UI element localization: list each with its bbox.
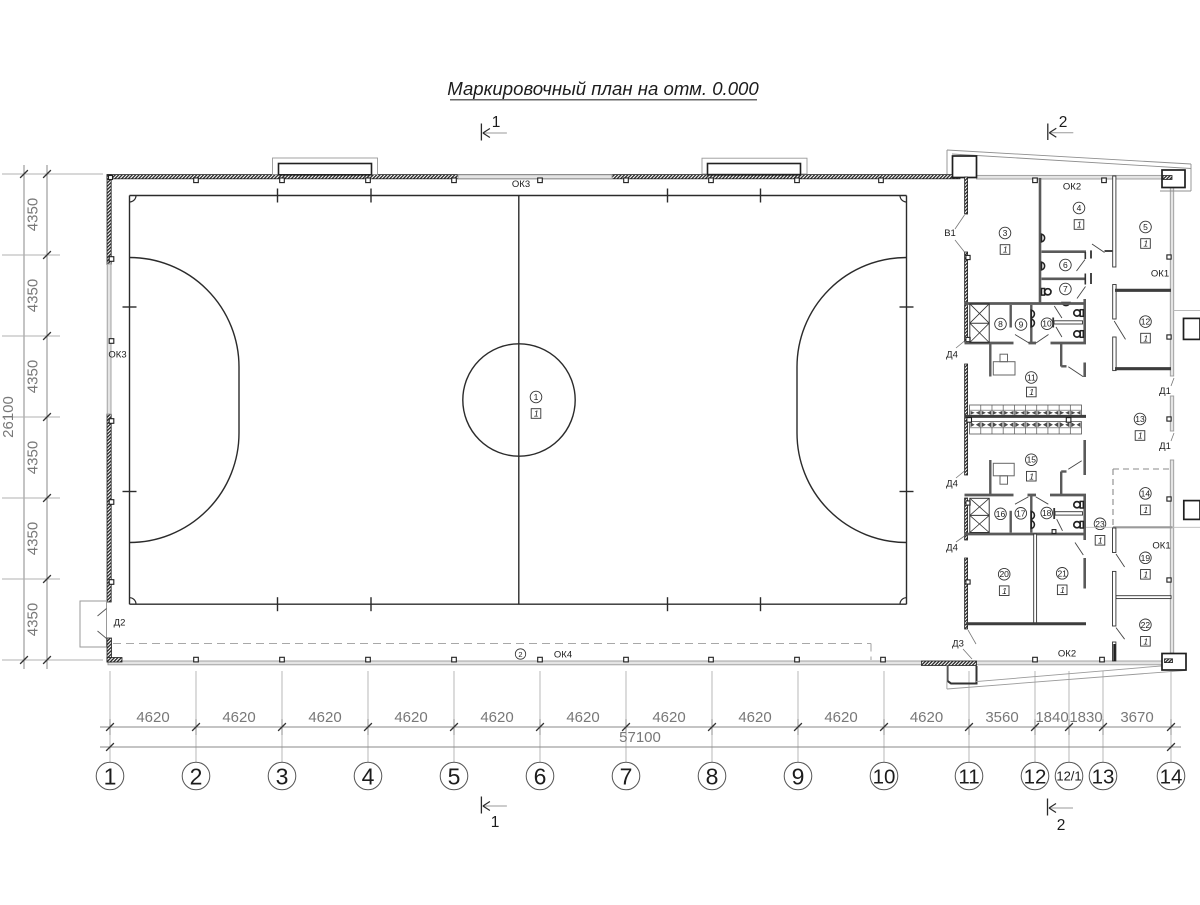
svg-text:Д1: Д1 [1159,441,1171,452]
svg-text:1840: 1840 [1035,709,1068,726]
svg-text:4: 4 [1077,203,1082,213]
svg-text:1: 1 [491,814,500,831]
svg-text:14: 14 [1160,765,1183,788]
svg-text:1: 1 [1029,387,1034,397]
svg-text:ОК2: ОК2 [1063,182,1081,193]
svg-text:1: 1 [1143,570,1148,580]
svg-text:6: 6 [534,763,547,789]
svg-text:22: 22 [1141,620,1151,630]
svg-text:В1: В1 [944,228,956,239]
svg-text:16: 16 [996,509,1006,519]
svg-text:5: 5 [1143,222,1148,232]
svg-text:1830: 1830 [1069,709,1102,726]
svg-text:5: 5 [448,763,461,789]
svg-text:Д4: Д4 [946,350,958,361]
svg-text:4620: 4620 [136,709,169,726]
svg-text:4350: 4350 [25,441,42,474]
svg-text:4620: 4620 [222,709,255,726]
svg-text:4620: 4620 [652,709,685,726]
svg-text:6: 6 [1063,260,1068,270]
svg-text:14: 14 [1141,488,1151,498]
svg-text:1: 1 [1143,505,1148,515]
svg-text:4620: 4620 [566,709,599,726]
svg-text:3670: 3670 [1120,709,1153,726]
svg-text:2: 2 [1057,817,1066,834]
svg-text:9: 9 [792,763,805,789]
svg-text:3560: 3560 [985,709,1018,726]
svg-text:4620: 4620 [824,709,857,726]
svg-text:11: 11 [958,765,979,788]
svg-text:1: 1 [1077,220,1082,230]
svg-text:2: 2 [190,763,203,789]
svg-text:4620: 4620 [394,709,427,726]
svg-text:15: 15 [1027,455,1037,465]
svg-text:10: 10 [1042,319,1052,329]
svg-text:4350: 4350 [25,279,42,312]
svg-text:26100: 26100 [0,396,17,438]
svg-text:8: 8 [706,763,719,789]
svg-text:19: 19 [1141,553,1151,563]
svg-text:4350: 4350 [25,198,42,231]
svg-text:ОК3: ОК3 [512,179,530,190]
svg-text:1: 1 [1003,245,1008,255]
svg-text:ОК1: ОК1 [1151,269,1169,280]
svg-text:20: 20 [999,569,1009,579]
svg-text:4: 4 [362,763,375,789]
svg-text:ОК4: ОК4 [554,650,572,661]
svg-text:4620: 4620 [308,709,341,726]
svg-text:1: 1 [1002,586,1007,596]
svg-text:1: 1 [1143,239,1148,249]
svg-text:2: 2 [1059,114,1068,131]
svg-text:8: 8 [998,319,1003,329]
svg-text:2: 2 [518,650,522,659]
svg-text:Маркировочный план на отм. 0.0: Маркировочный план на отм. 0.000 [447,78,759,99]
svg-text:11: 11 [1027,373,1036,383]
svg-text:9: 9 [1019,320,1024,330]
svg-text:1: 1 [1138,431,1143,441]
svg-text:4350: 4350 [25,360,42,393]
svg-text:ОК1: ОК1 [1152,541,1170,552]
svg-text:1: 1 [492,114,501,131]
svg-text:1: 1 [1143,333,1148,343]
svg-text:1: 1 [1143,637,1148,647]
svg-text:1: 1 [534,409,539,419]
svg-text:57100: 57100 [619,729,661,746]
svg-text:12: 12 [1024,765,1047,788]
svg-text:12/1: 12/1 [1056,769,1081,784]
svg-text:10: 10 [873,765,896,788]
svg-text:ОК2: ОК2 [1058,649,1076,660]
svg-text:4350: 4350 [25,522,42,555]
svg-text:ОК3: ОК3 [108,350,126,361]
svg-text:13: 13 [1135,414,1145,424]
svg-text:17: 17 [1016,508,1026,518]
svg-text:4350: 4350 [25,603,42,636]
svg-text:4620: 4620 [738,709,771,726]
svg-text:18: 18 [1042,508,1052,518]
svg-text:Д3: Д3 [952,639,964,650]
svg-text:Д2: Д2 [114,618,126,629]
svg-text:3: 3 [1003,228,1008,238]
svg-text:1: 1 [534,392,539,402]
svg-text:13: 13 [1092,765,1115,788]
svg-text:4620: 4620 [910,709,943,726]
svg-text:1: 1 [1098,536,1103,546]
svg-text:1: 1 [104,763,117,789]
svg-text:3: 3 [276,763,289,789]
svg-text:1: 1 [1060,585,1065,595]
svg-text:Д1: Д1 [1159,386,1171,397]
svg-text:Д4: Д4 [946,543,958,554]
svg-text:7: 7 [1063,284,1068,294]
svg-text:12: 12 [1141,317,1151,327]
svg-text:1: 1 [1029,471,1034,481]
svg-text:4620: 4620 [480,709,513,726]
svg-text:7: 7 [620,763,633,789]
svg-text:21: 21 [1057,568,1067,578]
svg-text:Д4: Д4 [946,479,958,490]
